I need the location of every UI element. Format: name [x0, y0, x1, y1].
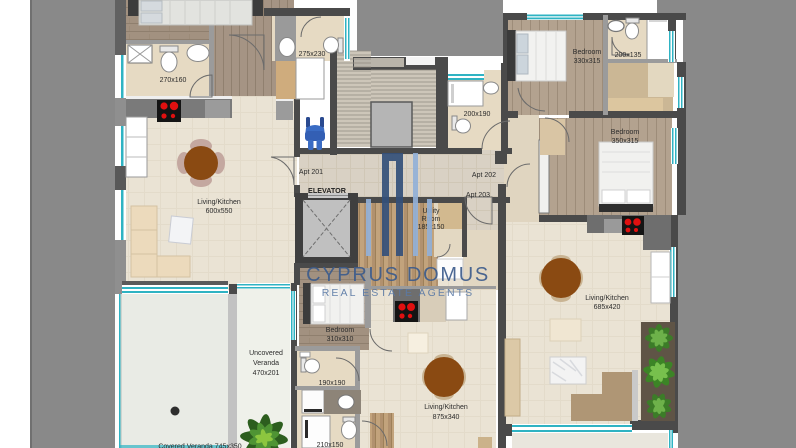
svg-text:275x230: 275x230: [299, 51, 326, 58]
svg-text:ELEVATOR: ELEVATOR: [308, 186, 347, 195]
svg-text:Uncovered: Uncovered: [249, 350, 283, 357]
svg-text:Bedroom: Bedroom: [326, 327, 355, 334]
svg-text:Covered Veranda 745x350: Covered Veranda 745x350: [158, 444, 241, 448]
svg-text:200x190: 200x190: [464, 111, 491, 118]
svg-text:Apt 202: Apt 202: [472, 172, 496, 179]
svg-text:REAL ESTATE AGENTS: REAL ESTATE AGENTS: [322, 287, 475, 299]
svg-text:Bedroom: Bedroom: [573, 49, 602, 56]
svg-text:190x190: 190x190: [319, 380, 346, 387]
svg-text:210x150: 210x150: [317, 442, 344, 448]
svg-text:310x310: 310x310: [327, 336, 354, 343]
svg-text:Apt 201: Apt 201: [299, 169, 323, 176]
svg-text:875x340: 875x340: [433, 414, 460, 421]
svg-text:Living/Kitchen: Living/Kitchen: [197, 199, 241, 206]
svg-text:Apt 203: Apt 203: [466, 192, 490, 199]
svg-text:CYPRUS DOMUS: CYPRUS DOMUS: [306, 264, 490, 286]
svg-text:685x420: 685x420: [594, 304, 621, 311]
svg-text:600x550: 600x550: [206, 208, 233, 215]
svg-text:Veranda: Veranda: [253, 360, 279, 367]
svg-text:470x201: 470x201: [253, 370, 280, 377]
svg-text:Bedroom: Bedroom: [611, 129, 640, 136]
svg-text:350x315: 350x315: [612, 138, 639, 145]
svg-text:270x160: 270x160: [160, 77, 187, 84]
svg-text:Living/Kitchen: Living/Kitchen: [424, 404, 468, 411]
svg-text:200x135: 200x135: [615, 52, 642, 59]
svg-text:Living/Kitchen: Living/Kitchen: [585, 295, 629, 302]
svg-text:330x315: 330x315: [574, 58, 601, 65]
